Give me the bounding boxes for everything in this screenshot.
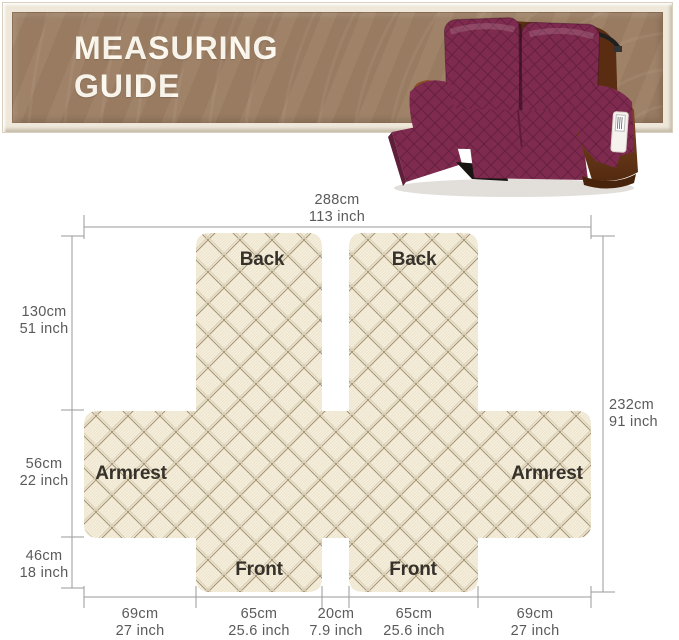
piece-label-back-left: Back — [240, 249, 285, 271]
measurement-inch: 27 inch — [511, 623, 560, 640]
piece-label-armrest-right: Armrest — [511, 463, 582, 485]
measurement-inch: 18 inch — [20, 565, 69, 582]
piece-label-front-left: Front — [235, 559, 283, 581]
measurement-bottom-2: 65cm 25.6 inch — [228, 606, 290, 640]
measurement-inch: 22 inch — [20, 473, 69, 490]
measurement-inch: 91 inch — [609, 414, 658, 431]
measurement-back-height: 130cm 51 inch — [20, 304, 69, 338]
measurement-cm: 20cm — [309, 606, 362, 623]
cover-layout-diagram — [0, 0, 679, 640]
measurement-bottom-3: 20cm 7.9 inch — [309, 606, 362, 640]
measurement-cm: 232cm — [609, 397, 658, 414]
piece-label-back-right: Back — [392, 249, 437, 271]
measurement-cm: 130cm — [20, 304, 69, 321]
measuring-guide-page: MEASURING GUIDE — [0, 0, 679, 640]
measurement-cm: 46cm — [20, 548, 69, 565]
measurement-cm: 56cm — [20, 456, 69, 473]
measurement-bottom-1: 69cm 27 inch — [116, 606, 165, 640]
measurement-top-width: 288cm 113 inch — [309, 192, 365, 226]
measurement-cm: 65cm — [383, 606, 445, 623]
measurement-cm: 69cm — [511, 606, 560, 623]
measurement-bottom-4: 65cm 25.6 inch — [383, 606, 445, 640]
measurement-cm: 288cm — [309, 192, 365, 209]
piece-label-front-right: Front — [389, 559, 437, 581]
measurement-inch: 25.6 inch — [383, 623, 445, 640]
measurement-inch: 7.9 inch — [309, 623, 362, 640]
piece-label-armrest-left: Armrest — [95, 463, 166, 485]
measurement-cm: 65cm — [228, 606, 290, 623]
measurement-total-height: 232cm 91 inch — [609, 397, 658, 431]
measurement-armrest-height: 56cm 22 inch — [20, 456, 69, 490]
measurement-bottom-5: 69cm 27 inch — [511, 606, 560, 640]
cover-cross-shape — [84, 233, 591, 592]
measurement-inch: 51 inch — [20, 321, 69, 338]
measurement-front-height: 46cm 18 inch — [20, 548, 69, 582]
measurement-inch: 27 inch — [116, 623, 165, 640]
measurement-inch: 25.6 inch — [228, 623, 290, 640]
measurement-inch: 113 inch — [309, 209, 365, 226]
measurement-cm: 69cm — [116, 606, 165, 623]
